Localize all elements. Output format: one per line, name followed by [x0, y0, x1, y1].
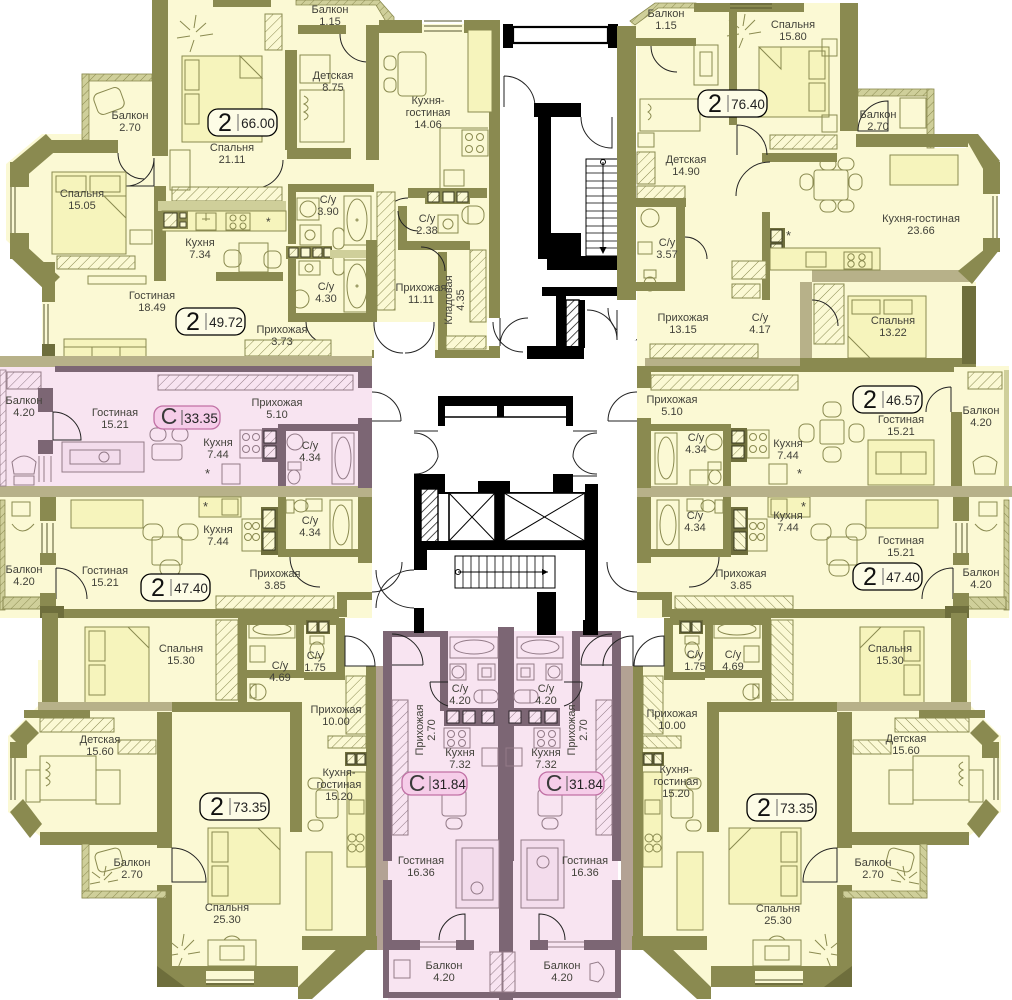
svg-text:Спальня: Спальня — [60, 188, 104, 200]
svg-text:Детская: Детская — [313, 70, 354, 82]
svg-text:Детская: Детская — [666, 154, 707, 166]
svg-text:10.00: 10.00 — [658, 720, 686, 732]
svg-text:21.11: 21.11 — [219, 154, 246, 166]
svg-text:2: 2 — [708, 90, 722, 118]
svg-text:С/у: С/у — [302, 440, 319, 452]
svg-text:2: 2 — [218, 109, 232, 137]
svg-text:66.00: 66.00 — [241, 116, 275, 131]
svg-text:*: * — [266, 215, 271, 229]
svg-text:16.36: 16.36 — [571, 867, 599, 879]
svg-text:Прихожая: Прихожая — [647, 394, 698, 406]
svg-text:4.20: 4.20 — [970, 417, 991, 429]
svg-text:Спальня: Спальня — [756, 903, 800, 915]
svg-text:Прихожая: Прихожая — [257, 324, 308, 336]
svg-text:3.85: 3.85 — [730, 580, 751, 592]
svg-text:Прихожая: Прихожая — [647, 708, 698, 720]
svg-text:С/у: С/у — [272, 660, 289, 672]
svg-text:Кухня: Кухня — [203, 524, 232, 536]
svg-text:С/у: С/у — [302, 515, 319, 527]
svg-text:Кухня: Кухня — [445, 747, 474, 759]
svg-text:15.05: 15.05 — [68, 200, 96, 212]
svg-text:Балкон: Балкон — [6, 395, 43, 407]
svg-text:Балкон: Балкон — [544, 960, 581, 972]
svg-text:Балкон: Балкон — [114, 857, 151, 869]
svg-text:3.73: 3.73 — [271, 336, 292, 348]
svg-text:*: * — [797, 466, 802, 481]
svg-text:Кухня: Кухня — [203, 437, 232, 449]
svg-text:2: 2 — [210, 793, 224, 821]
svg-text:49.72: 49.72 — [209, 315, 243, 330]
svg-text:Балкон: Балкон — [963, 405, 1000, 417]
svg-text:25.30: 25.30 — [764, 915, 792, 927]
svg-text:8.75: 8.75 — [322, 82, 343, 94]
svg-text:15.21: 15.21 — [887, 426, 915, 438]
svg-text:11.11: 11.11 — [408, 294, 434, 306]
svg-text:С/у: С/у — [687, 510, 704, 522]
svg-text:15.20: 15.20 — [662, 788, 690, 800]
svg-text:Спальня: Спальня — [159, 643, 203, 655]
svg-text:Балкон: Балкон — [855, 857, 892, 869]
svg-text:7.44: 7.44 — [777, 522, 798, 534]
svg-text:4.20: 4.20 — [551, 972, 572, 984]
svg-text:Детская: Детская — [80, 734, 121, 746]
svg-text:С/у: С/у — [452, 683, 469, 695]
svg-text:*: * — [786, 228, 791, 243]
svg-text:Балкон: Балкон — [112, 110, 149, 122]
svg-text:1.15: 1.15 — [655, 20, 676, 32]
svg-text:15.21: 15.21 — [887, 547, 915, 559]
svg-text:Прихожая: Прихожая — [716, 568, 767, 580]
svg-text:5.10: 5.10 — [661, 406, 682, 418]
svg-text:Балкон: Балкон — [860, 109, 897, 121]
svg-text:1.75: 1.75 — [304, 662, 325, 674]
svg-text:4.20: 4.20 — [970, 579, 991, 591]
svg-text:15.21: 15.21 — [91, 577, 119, 589]
svg-text:31.84: 31.84 — [432, 777, 466, 792]
svg-text:2: 2 — [757, 794, 771, 822]
svg-text:33.35: 33.35 — [184, 411, 218, 426]
svg-text:4.20: 4.20 — [449, 695, 470, 707]
svg-text:Кухня: Кухня — [773, 438, 802, 450]
svg-text:46.57: 46.57 — [886, 393, 920, 408]
svg-text:7.34: 7.34 — [189, 249, 210, 261]
svg-text:Балкон: Балкон — [312, 4, 349, 16]
svg-text:Кухня: Кухня — [531, 747, 560, 759]
svg-text:3.57: 3.57 — [656, 249, 677, 261]
svg-text:2: 2 — [863, 386, 877, 414]
svg-text:С/у: С/у — [752, 312, 769, 324]
svg-text:1.15: 1.15 — [319, 16, 340, 28]
svg-text:С/у: С/у — [307, 650, 324, 662]
svg-text:4.69: 4.69 — [269, 672, 290, 684]
svg-text:Гостиная: Гостиная — [129, 290, 175, 302]
svg-text:С/у: С/у — [538, 683, 555, 695]
svg-text:2.70: 2.70 — [119, 122, 140, 134]
svg-text:14.06: 14.06 — [414, 119, 442, 131]
svg-text:15.30: 15.30 — [167, 655, 195, 667]
svg-text:гостиная: гостиная — [654, 776, 699, 788]
svg-text:C: C — [546, 770, 563, 796]
svg-text:2.70: 2.70 — [121, 869, 142, 881]
svg-text:25.30: 25.30 — [213, 914, 241, 926]
svg-text:Прихожая: Прихожая — [250, 568, 301, 580]
svg-text:47.40: 47.40 — [886, 570, 920, 585]
svg-text:Гостиная: Гостиная — [878, 535, 924, 547]
svg-text:Спальня: Спальня — [771, 19, 815, 31]
svg-text:4.34: 4.34 — [299, 452, 320, 464]
svg-text:7.32: 7.32 — [449, 759, 470, 771]
svg-text:3.85: 3.85 — [264, 580, 285, 592]
svg-text:4.34: 4.34 — [684, 522, 705, 534]
svg-text:13.22: 13.22 — [879, 327, 907, 339]
svg-text:Кухня-: Кухня- — [659, 764, 692, 776]
svg-text:*: * — [205, 466, 210, 481]
svg-text:7.44: 7.44 — [207, 536, 228, 548]
svg-text:5.10: 5.10 — [266, 409, 287, 421]
svg-text:4.20: 4.20 — [535, 695, 556, 707]
svg-text:15.80: 15.80 — [779, 31, 807, 43]
svg-text:Кухня-: Кухня- — [322, 767, 355, 779]
svg-text:*: * — [203, 499, 208, 514]
svg-text:7.44: 7.44 — [207, 449, 228, 461]
svg-text:Кухня-гостиная: Кухня-гостиная — [882, 213, 960, 225]
svg-text:15.30: 15.30 — [876, 655, 904, 667]
svg-text:Гостиная: Гостиная — [398, 855, 444, 867]
svg-text:Спальня: Спальня — [871, 315, 915, 327]
svg-text:14.90: 14.90 — [672, 166, 700, 178]
svg-text:76.40: 76.40 — [731, 97, 765, 112]
svg-text:Гостиная: Гостиная — [562, 855, 608, 867]
svg-text:4.17: 4.17 — [749, 324, 770, 336]
svg-text:2.70: 2.70 — [862, 869, 883, 881]
svg-text:2: 2 — [151, 574, 165, 602]
svg-text:4.20: 4.20 — [433, 972, 454, 984]
svg-text:С/у: С/у — [687, 649, 704, 661]
svg-text:15.60: 15.60 — [892, 745, 920, 757]
svg-text:4.20: 4.20 — [13, 407, 34, 419]
svg-text:С/у: С/у — [419, 213, 436, 225]
svg-text:С/у: С/у — [320, 194, 337, 206]
svg-text:73.35: 73.35 — [780, 801, 814, 816]
svg-text:С/у: С/у — [725, 649, 742, 661]
svg-text:4.34: 4.34 — [299, 527, 320, 539]
svg-text:Кухня-: Кухня- — [411, 95, 444, 107]
svg-text:Прихожая: Прихожая — [311, 704, 362, 716]
svg-text:Спальня: Спальня — [210, 142, 254, 154]
svg-text:2.70: 2.70 — [867, 121, 888, 133]
svg-text:2: 2 — [863, 563, 877, 591]
svg-text:C: C — [409, 770, 426, 796]
svg-text:31.84: 31.84 — [569, 777, 603, 792]
svg-text:Гостиная: Гостиная — [82, 565, 128, 577]
svg-text:Спальня: Спальня — [205, 902, 249, 914]
svg-text:23.66: 23.66 — [907, 225, 935, 237]
svg-text:гостиная: гостиная — [406, 107, 451, 119]
svg-text:Кухня: Кухня — [773, 510, 802, 522]
svg-text:4.20: 4.20 — [13, 576, 34, 588]
svg-text:Балкон: Балкон — [6, 564, 43, 576]
svg-text:Гостиная: Гостиная — [878, 414, 924, 426]
svg-text:С/у: С/у — [318, 281, 335, 293]
svg-text:С/у: С/у — [688, 432, 705, 444]
svg-text:Спальня: Спальня — [868, 643, 912, 655]
svg-text:10.00: 10.00 — [322, 716, 350, 728]
svg-text:73.35: 73.35 — [233, 800, 267, 815]
svg-text:4.69: 4.69 — [722, 661, 743, 673]
svg-text:Детская: Детская — [886, 733, 927, 745]
svg-text:4.30: 4.30 — [315, 293, 336, 305]
svg-text:гостиная: гостиная — [317, 779, 362, 791]
svg-text:16.36: 16.36 — [407, 867, 435, 879]
svg-text:Прихожая: Прихожая — [396, 282, 447, 294]
svg-text:15.20: 15.20 — [325, 791, 353, 803]
svg-text:Гостиная: Гостиная — [92, 407, 138, 419]
svg-text:1.75: 1.75 — [684, 661, 705, 673]
svg-text:Балкон: Балкон — [426, 960, 463, 972]
svg-text:2.38: 2.38 — [416, 225, 437, 237]
svg-text:3.90: 3.90 — [317, 206, 338, 218]
svg-text:4.34: 4.34 — [685, 444, 706, 456]
svg-text:2: 2 — [186, 308, 200, 336]
svg-text:13.15: 13.15 — [669, 324, 697, 336]
svg-text:Кухня: Кухня — [185, 237, 214, 249]
svg-text:Прихожая: Прихожая — [252, 397, 303, 409]
svg-text:15.60: 15.60 — [86, 746, 114, 758]
svg-text:7.44: 7.44 — [777, 450, 798, 462]
svg-text:С/у: С/у — [659, 237, 676, 249]
svg-text:Балкон: Балкон — [648, 8, 685, 20]
svg-text:15.21: 15.21 — [101, 419, 129, 431]
svg-text:Прихожая: Прихожая — [658, 312, 709, 324]
svg-text:C: C — [161, 403, 178, 429]
svg-text:47.40: 47.40 — [174, 581, 208, 596]
svg-text:18.49: 18.49 — [138, 302, 166, 314]
svg-text:Балкон: Балкон — [963, 567, 1000, 579]
